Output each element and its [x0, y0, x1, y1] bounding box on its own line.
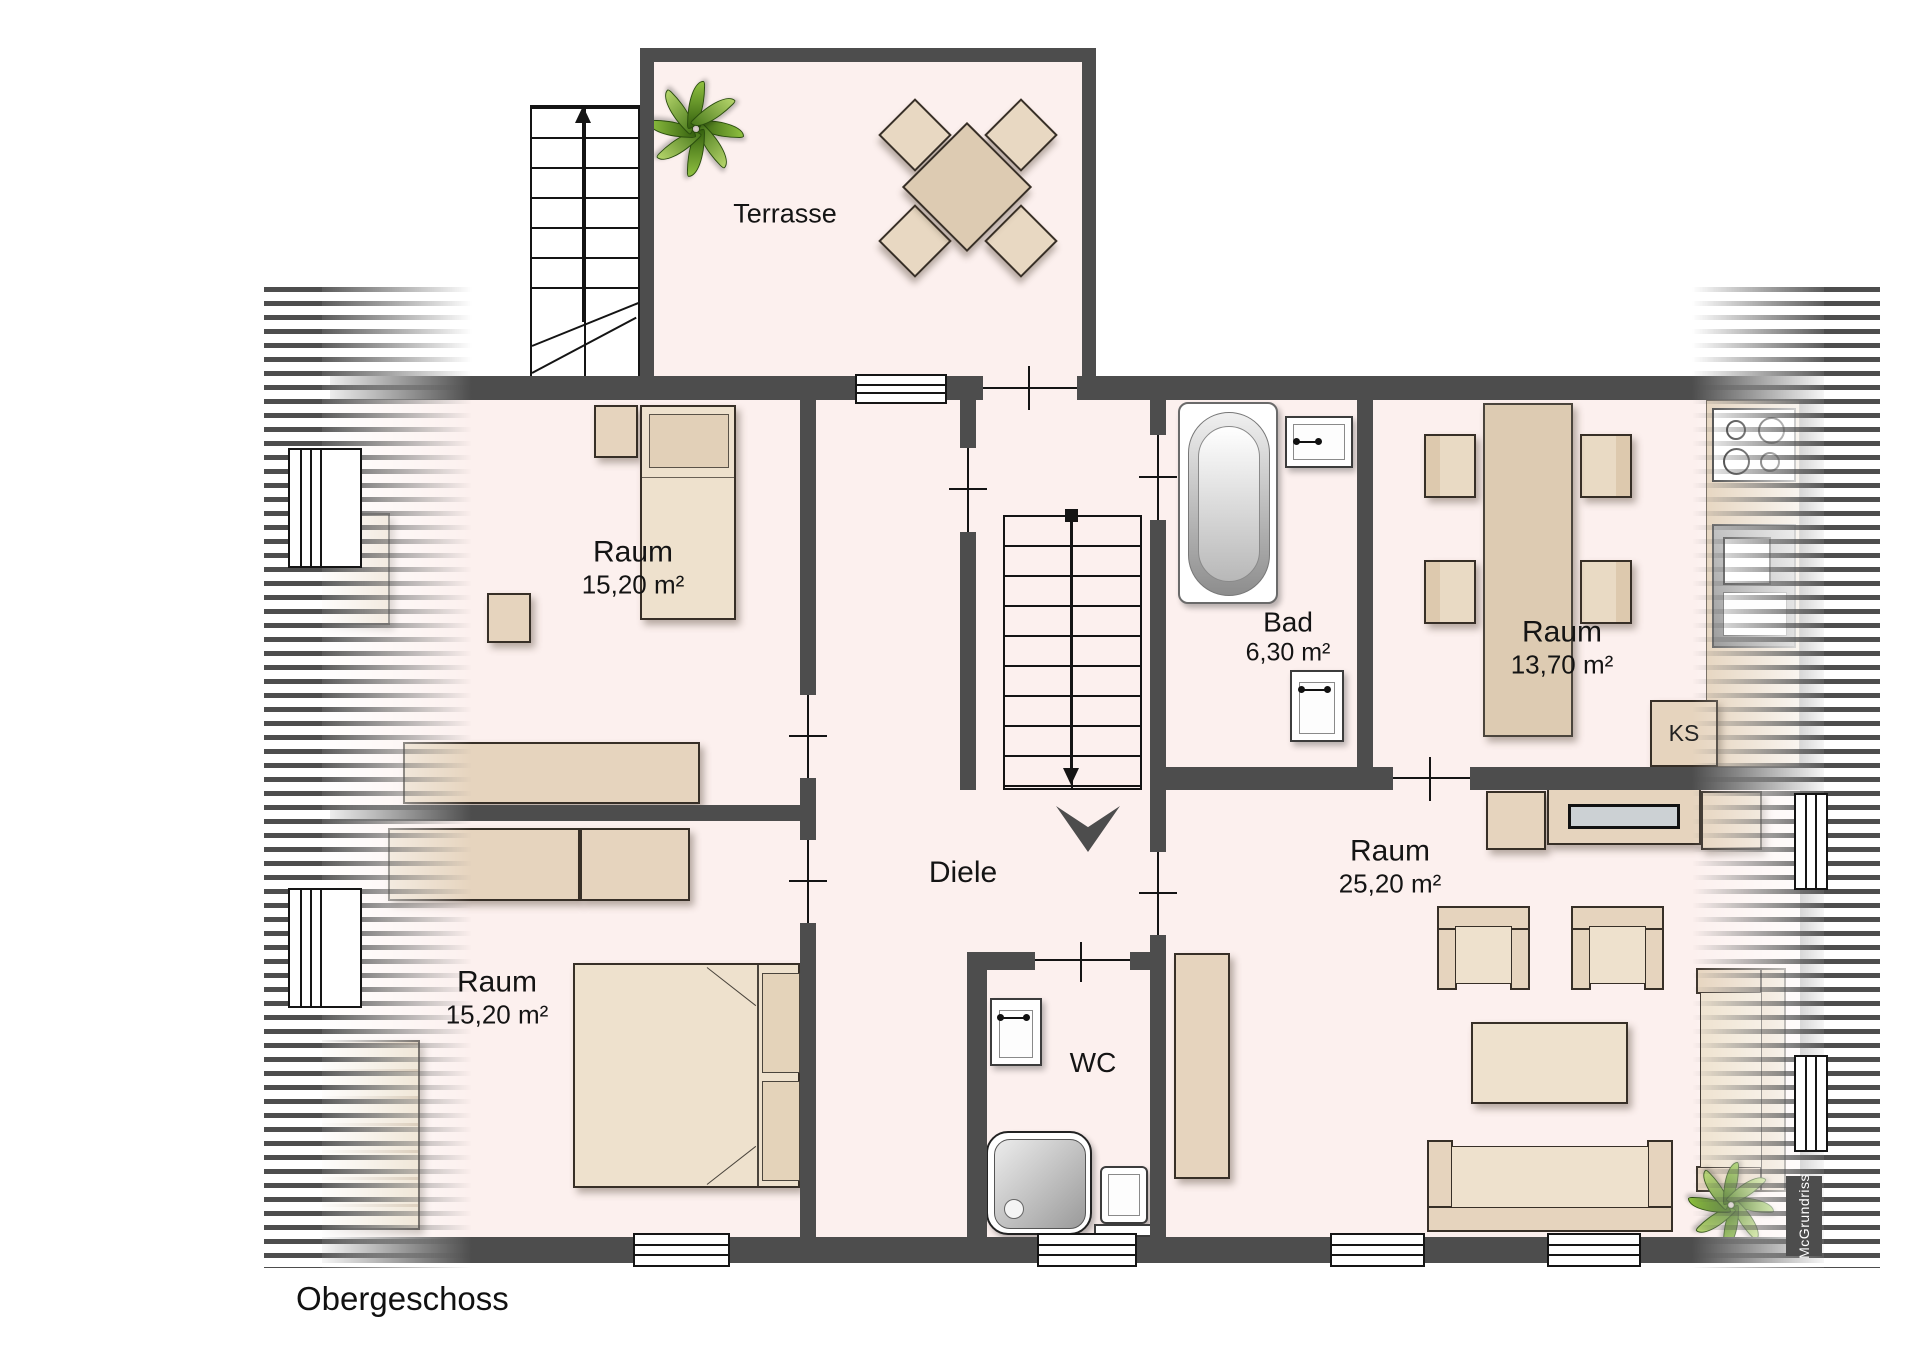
- roof-window: [288, 448, 362, 568]
- pillow: [762, 1081, 800, 1181]
- washbasin: [1290, 670, 1344, 742]
- outer-wall-top: [330, 376, 1824, 400]
- dining-chair: [1424, 560, 1476, 624]
- blanket-line: [642, 477, 734, 478]
- room-name: Terrasse: [733, 199, 837, 230]
- tub-basin: [1198, 426, 1260, 582]
- dining-chair: [1580, 434, 1632, 498]
- window: [855, 374, 947, 404]
- wall-bad-living: [1150, 400, 1166, 1237]
- room-area: 15,20 m²: [446, 1000, 549, 1031]
- tv-unit: [1547, 787, 1701, 845]
- room-area: 13,70 m²: [1511, 650, 1614, 681]
- wall-wc-left: [967, 952, 987, 1237]
- dining-chair: [1424, 434, 1476, 498]
- room-area: 25,20 m²: [1339, 869, 1442, 900]
- room-name: Raum: [582, 536, 685, 570]
- stair-center-line: [584, 107, 586, 376]
- roof-slope-hatch-left-fade: [322, 287, 472, 1268]
- room-label-diele: Diele: [929, 856, 997, 890]
- roof-slope-hatch-left: [264, 287, 322, 1268]
- washbasin: [990, 998, 1042, 1066]
- nightstand: [594, 405, 638, 458]
- terrace-wall-top: [640, 48, 1096, 62]
- radiator: [1285, 416, 1353, 468]
- room-name: Diele: [929, 856, 997, 890]
- door-tick: [789, 735, 827, 737]
- stair-up-arrow: [582, 122, 584, 322]
- room-area: 15,20 m²: [582, 570, 685, 601]
- room-label-bad: Bad 6,30 m²: [1246, 607, 1331, 668]
- watermark-text: McGrundriss: [1796, 1174, 1812, 1259]
- door-tick: [1080, 942, 1082, 982]
- interior-staircase: [1003, 515, 1142, 790]
- coffee-table: [1471, 1022, 1628, 1104]
- door-tick: [789, 880, 827, 882]
- side-table: [487, 593, 531, 643]
- stair-newel: [1065, 509, 1078, 522]
- room-label-terrasse: Terrasse: [733, 199, 837, 230]
- bathtub: [1178, 402, 1278, 604]
- door-line: [983, 387, 1077, 389]
- room-area: 6,30 m²: [1246, 639, 1331, 668]
- stair-down-arrow: [1070, 522, 1072, 768]
- room-name: WC: [1070, 1047, 1117, 1079]
- watermark-badge: McGrundriss: [1786, 1176, 1822, 1256]
- tv-lowboard: [1486, 791, 1546, 850]
- sofa: [1427, 1140, 1673, 1232]
- stair-down-arrowhead: [1063, 768, 1079, 785]
- roof-window: [288, 888, 362, 1008]
- pillow: [762, 973, 800, 1073]
- wardrobe: [580, 828, 690, 901]
- room-label-raum-bottom-left: Raum 15,20 m²: [446, 966, 549, 1031]
- room-name: Raum: [1339, 835, 1442, 869]
- room-name: Bad: [1246, 607, 1331, 639]
- room-label-raum-dining: Raum 13,70 m²: [1511, 616, 1614, 681]
- window: [1794, 793, 1828, 890]
- tv-screen: [1568, 804, 1680, 829]
- mattress-divider: [757, 965, 759, 1186]
- bed-double: [573, 963, 800, 1188]
- shower: [986, 1131, 1092, 1235]
- toilet: [1100, 1166, 1148, 1224]
- cupboard: [1174, 953, 1230, 1179]
- floor-plan: KS Te: [0, 0, 1920, 1357]
- door-line: [1393, 777, 1470, 779]
- blanket-fold: [707, 967, 756, 1006]
- window: [1037, 1233, 1137, 1267]
- door-tick: [949, 488, 987, 490]
- window: [1794, 1055, 1828, 1152]
- door-line: [967, 448, 969, 532]
- wall-bad-dining: [1357, 400, 1373, 790]
- door-tick: [1429, 757, 1431, 801]
- room-label-raum-living: Raum 25,20 m²: [1339, 835, 1442, 900]
- armchair: [1437, 906, 1530, 992]
- wall-left-rooms: [800, 400, 816, 1237]
- terrace-wall-left: [640, 48, 654, 378]
- dining-table: [1483, 403, 1573, 737]
- armchair: [1571, 906, 1664, 992]
- plant-icon: [652, 76, 740, 164]
- exterior-staircase: [530, 105, 640, 378]
- floor-title: Obergeschoss: [296, 1280, 509, 1318]
- room-name: Raum: [1511, 616, 1614, 650]
- room-name: Raum: [446, 966, 549, 1000]
- blanket-fold: [707, 1146, 756, 1185]
- door-opening-wc: [1035, 952, 1130, 970]
- stair-up-arrowhead: [575, 106, 591, 123]
- window: [1547, 1233, 1641, 1267]
- window: [633, 1233, 730, 1267]
- dining-chair: [1580, 560, 1632, 624]
- pillow: [649, 414, 729, 468]
- room-label-raum-top-left: Raum 15,20 m²: [582, 536, 685, 601]
- window: [1330, 1233, 1425, 1267]
- door-line: [1035, 959, 1130, 961]
- door-tick: [1139, 476, 1177, 478]
- shower-drain: [1004, 1199, 1024, 1219]
- door-tick: [1028, 366, 1030, 410]
- terrace-wall-right: [1082, 48, 1096, 378]
- door-tick: [1139, 892, 1177, 894]
- room-label-wc: WC: [1070, 1047, 1117, 1079]
- roof-slope-hatch-right: [1824, 287, 1880, 1268]
